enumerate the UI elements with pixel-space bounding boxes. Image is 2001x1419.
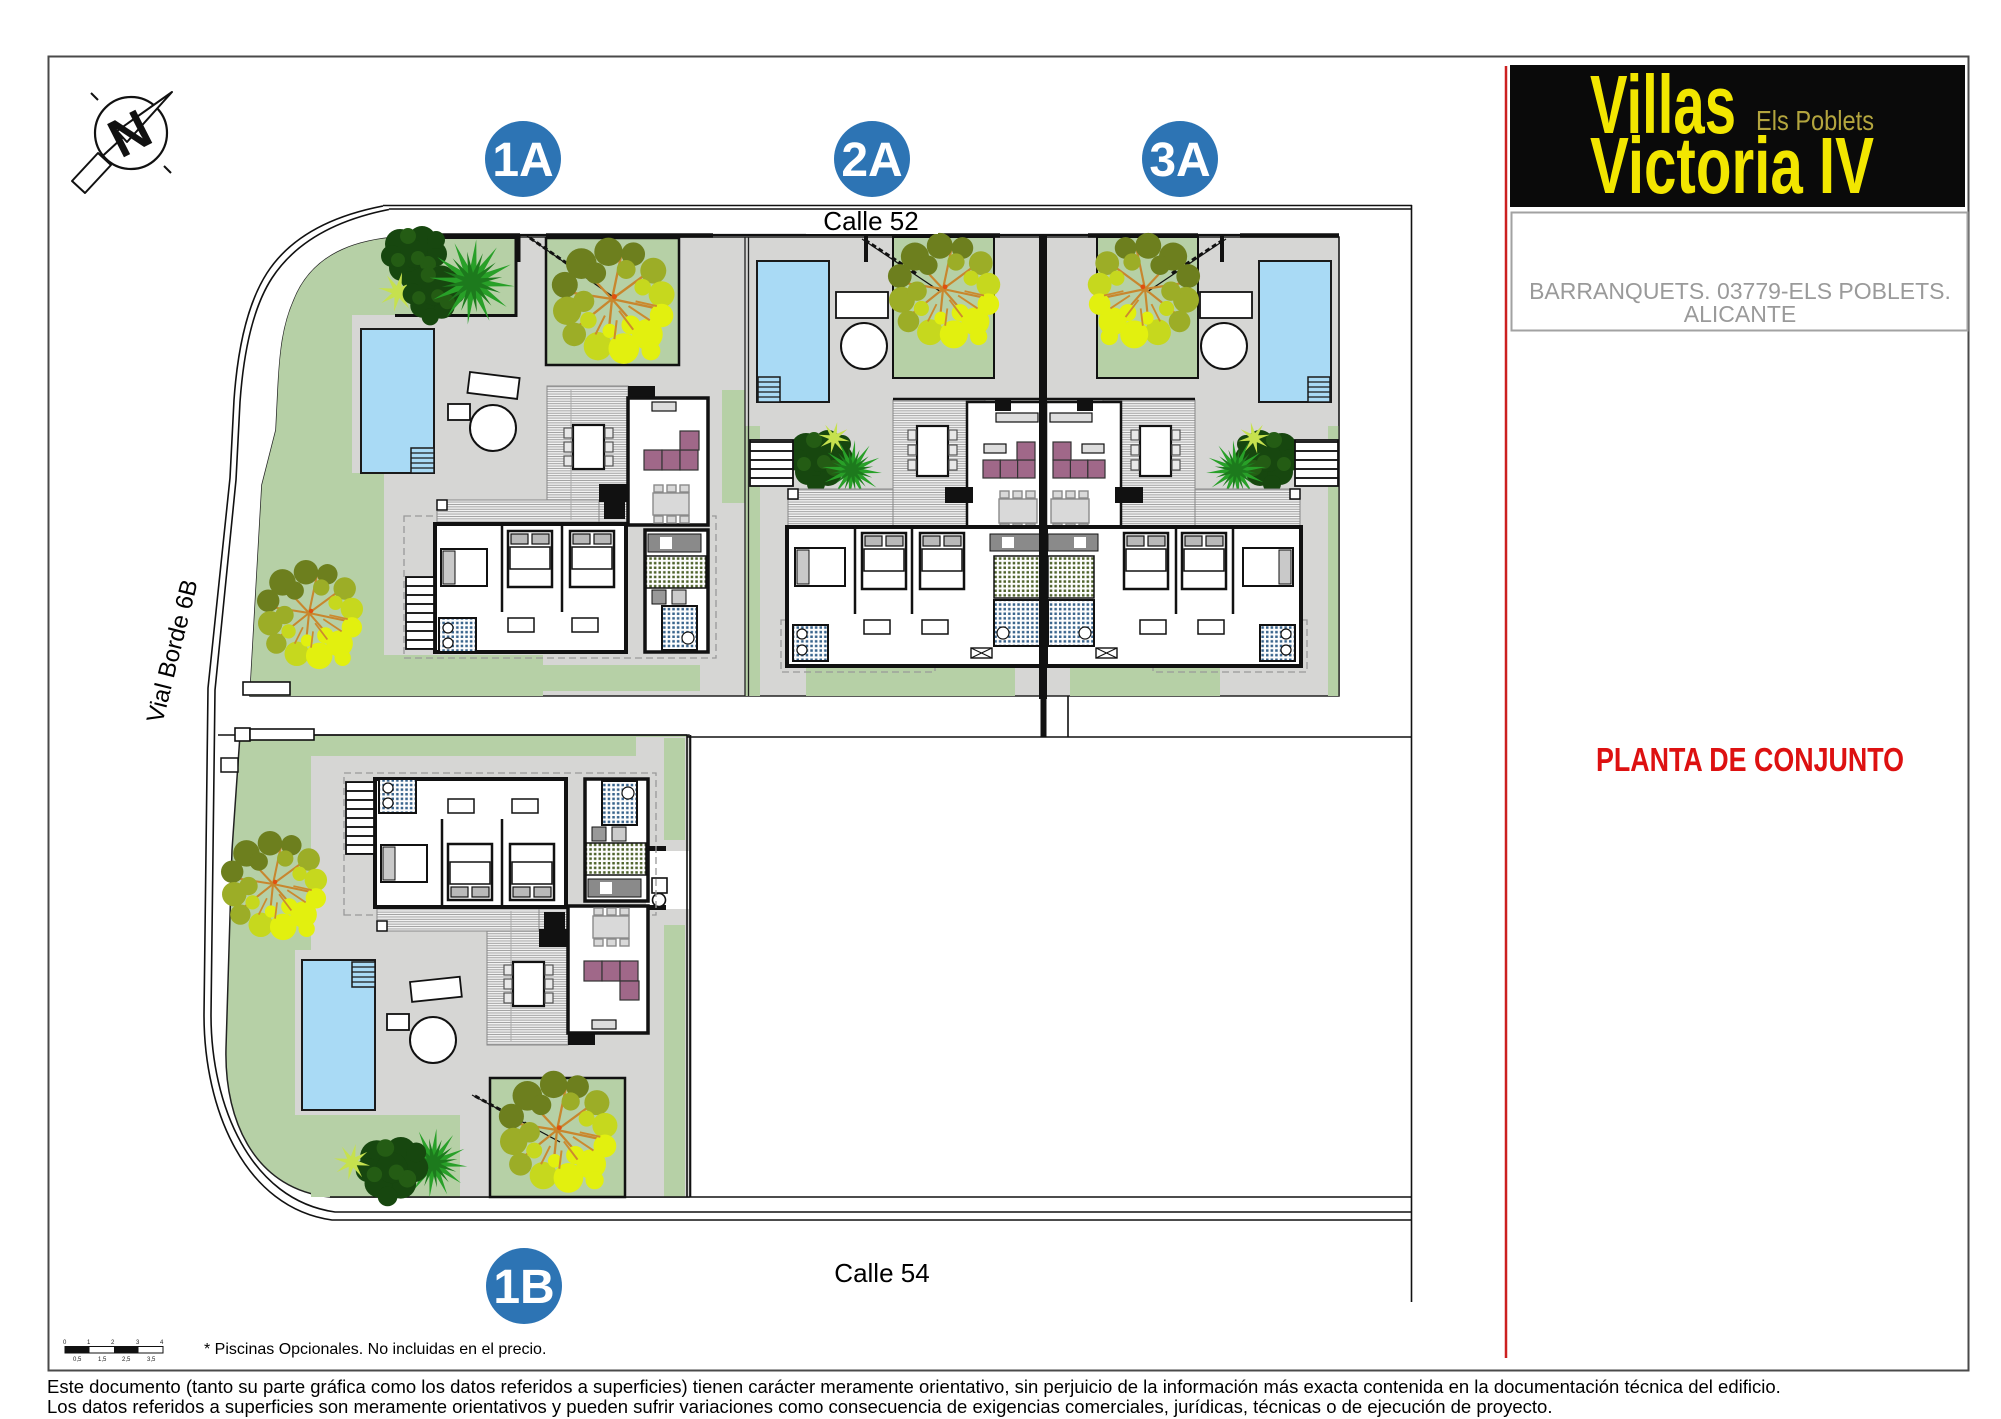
svg-text:3,5: 3,5 (147, 1357, 156, 1363)
svg-text:Calle 54: Calle 54 (834, 1258, 929, 1288)
svg-text:* Piscinas Opcionales. No incl: * Piscinas Opcionales. No incluidas en e… (204, 1341, 546, 1358)
svg-text:PLANTA DE CONJUNTO: PLANTA DE CONJUNTO (1596, 741, 1904, 778)
svg-text:Vial Borde 6B: Vial Borde 6B (142, 577, 204, 726)
svg-text:Victoria IV: Victoria IV (1590, 121, 1874, 210)
svg-text:1A: 1A (492, 134, 553, 187)
svg-text:Los datos referidos a superfic: Los datos referidos a superficies son me… (47, 1396, 1552, 1417)
svg-text:2,5: 2,5 (122, 1357, 131, 1363)
svg-text:ALICANTE: ALICANTE (1684, 301, 1796, 327)
svg-text:1: 1 (87, 1340, 91, 1346)
svg-text:Este documento (tanto su parte: Este documento (tanto su parte gráfica c… (47, 1376, 1781, 1397)
svg-text:3A: 3A (1149, 134, 1210, 187)
svg-text:Calle 52: Calle 52 (823, 206, 918, 236)
svg-text:0: 0 (63, 1340, 67, 1346)
svg-text:2A: 2A (841, 134, 902, 187)
svg-text:0,5: 0,5 (73, 1357, 82, 1363)
svg-text:3: 3 (136, 1340, 140, 1346)
svg-text:4: 4 (160, 1340, 164, 1346)
svg-text:1,5: 1,5 (98, 1357, 107, 1363)
svg-text:1B: 1B (493, 1261, 554, 1314)
svg-text:2: 2 (111, 1340, 115, 1346)
